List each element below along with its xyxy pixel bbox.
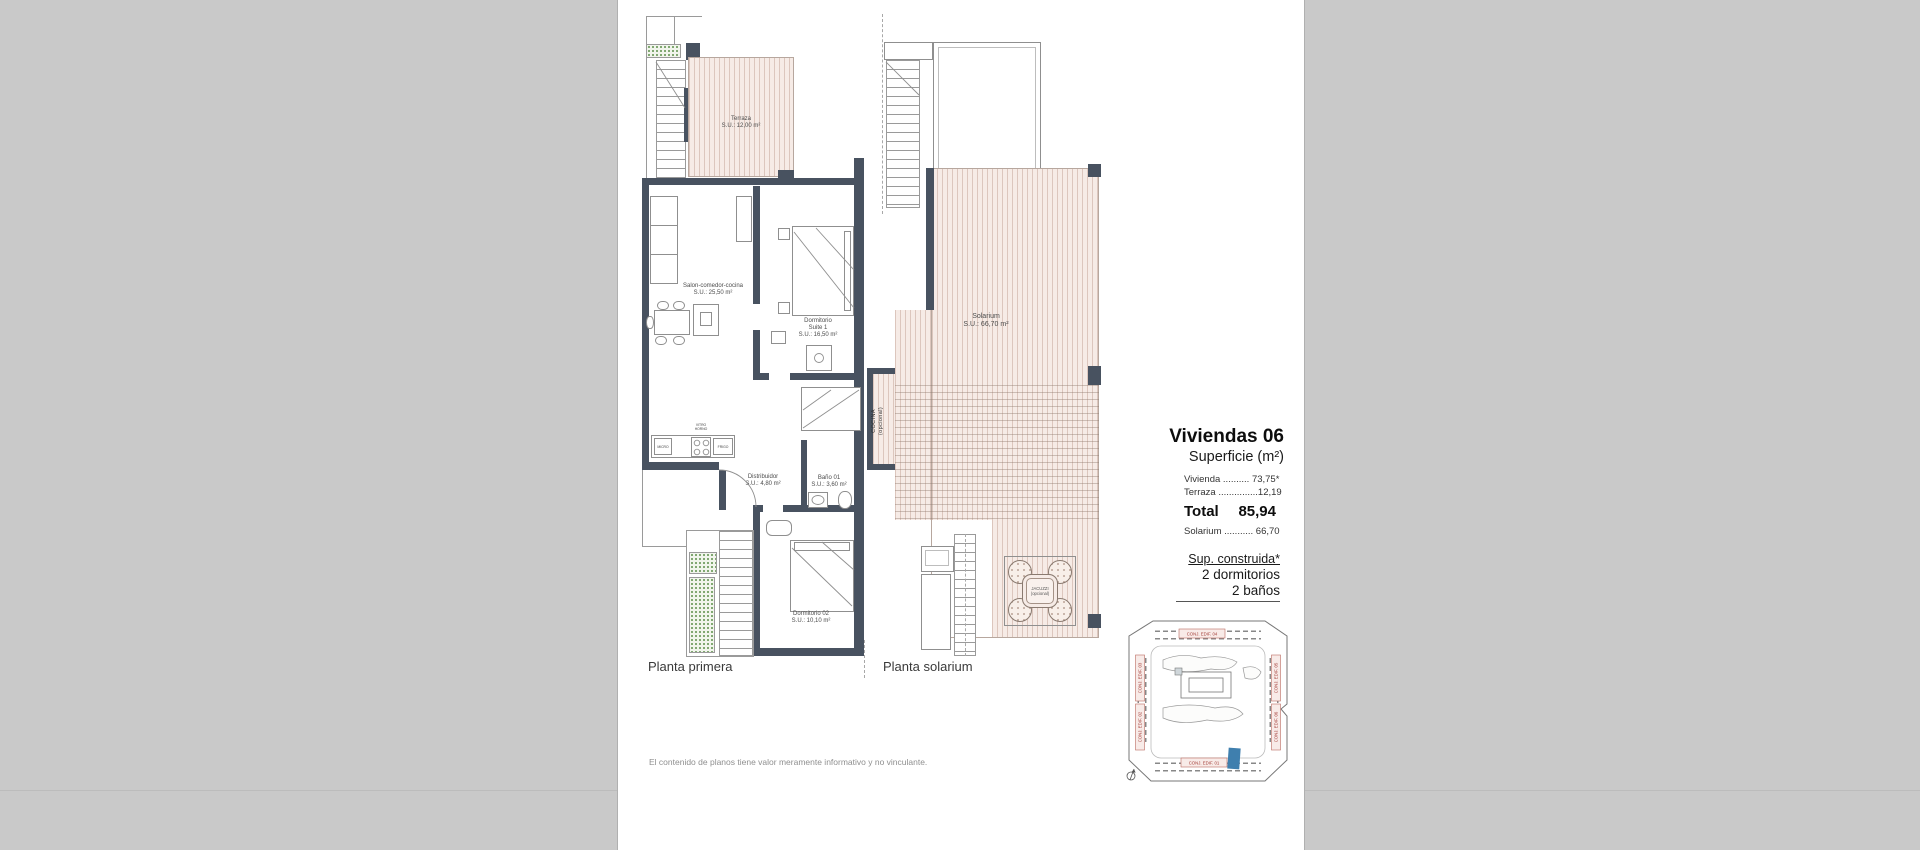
thin-wall-line	[642, 546, 686, 547]
chair	[673, 336, 685, 345]
room-name: Terraza	[731, 116, 751, 122]
room-area: S.U.: 4,80 m²	[745, 481, 780, 487]
appliance-label: HORNO	[695, 427, 708, 431]
sup-construida-note: Sup. construida*	[1118, 552, 1280, 567]
nightstand	[778, 228, 790, 240]
room-name: COCINA	[871, 409, 877, 433]
chair	[646, 316, 654, 329]
jacuzzi-tub: JACUZZI (opcional)	[1022, 574, 1058, 608]
room-area: S.U.: 16,50 m²	[799, 332, 838, 338]
wall-segment	[756, 648, 864, 656]
label-edif-01: CONJ. EDIF. 01	[1189, 761, 1220, 766]
chair	[673, 301, 685, 310]
wall-segment	[867, 464, 895, 470]
area-row-vivienda: Vivienda .......... 73,75*	[1184, 474, 1284, 486]
info-underline	[1176, 601, 1280, 602]
room-name: (opcional)	[878, 407, 884, 435]
room-area: S.U.: 3,60 m²	[811, 482, 846, 488]
microwave: MICRO	[654, 438, 672, 455]
area-row-terraza: Terraza ...............12,19	[1184, 487, 1284, 499]
lot-line	[646, 16, 647, 178]
planter	[646, 44, 681, 58]
shower-tray	[806, 345, 832, 371]
lot-line	[674, 16, 675, 44]
jacuzzi-label: (opcional)	[1031, 591, 1049, 597]
room-label-terraza: Terraza S.U.: 12,00 m²	[706, 116, 776, 132]
room-name: Dormitorio	[804, 318, 832, 324]
room-name: Suite 1	[809, 325, 828, 331]
room-name: Distribuidor	[748, 474, 778, 480]
wall-pillar	[1088, 164, 1101, 177]
roof-room	[921, 574, 951, 650]
chair	[657, 301, 669, 310]
chair	[655, 336, 667, 345]
room-area: S.U.: 12,00 m²	[722, 123, 761, 129]
dining-table	[654, 310, 690, 335]
central-building-inner	[1189, 678, 1223, 692]
bathrooms-count: 2 baños	[1118, 583, 1280, 599]
wall-segment	[642, 178, 864, 185]
wall-segment	[926, 168, 934, 310]
bedrooms-count: 2 dormitorios	[1118, 567, 1280, 583]
highlighted-unit	[1227, 748, 1240, 770]
label-edif-05: CONJ. EDIF. 05	[1274, 662, 1279, 693]
label-edif-03: CONJ. EDIF. 03	[1138, 662, 1143, 693]
wall-segment	[790, 373, 864, 380]
disclaimer-note: El contenido de planos tiene valor meram…	[649, 757, 1079, 769]
room-area: S.U.: 10,10 m²	[792, 618, 831, 624]
thin-wall-line	[642, 470, 643, 546]
wall-segment	[753, 512, 760, 656]
plan-title-solarium: Planta solarium	[883, 659, 973, 674]
staircase	[719, 531, 753, 656]
planter	[689, 577, 715, 653]
label-edif-04: CONJ. EDIF. 04	[1187, 632, 1218, 637]
staircase	[886, 60, 920, 208]
stair-centerline	[965, 534, 966, 656]
plan-title-primera: Planta primera	[648, 659, 733, 674]
island-sink	[700, 312, 712, 326]
wall-segment	[753, 330, 760, 373]
north-circle	[1127, 772, 1135, 780]
wall-pillar	[1088, 366, 1101, 385]
unit-subtitle: Superficie (m²)	[1118, 449, 1284, 466]
garden-blob	[1163, 655, 1237, 671]
unit-title: Viviendas 06	[1118, 426, 1284, 448]
bed-pillow	[794, 542, 850, 551]
appliance-label: FRIGO	[718, 445, 729, 449]
tv-unit	[736, 196, 752, 242]
stair-landing	[884, 42, 933, 60]
total-value: 85,94	[1238, 503, 1276, 523]
lot-line-dashed	[882, 14, 883, 214]
north-arrow-icon	[1127, 769, 1136, 780]
room-name: Solarium	[972, 313, 1000, 320]
bed-pillow	[844, 231, 851, 311]
room-name: Salon-comedor-cocina	[683, 283, 743, 289]
room-label-cocina: COCINA (opcional)	[871, 378, 895, 464]
area-row-solarium: Solarium ........... 66,70	[1184, 526, 1284, 538]
sofa	[650, 196, 678, 284]
total-label: Total	[1184, 503, 1219, 523]
nightstand	[778, 302, 790, 314]
room-label-salon: Salon-comedor-cocina S.U.: 25,50 m²	[663, 283, 763, 299]
pergola-grid	[895, 385, 1099, 519]
toilet	[838, 491, 852, 509]
vanity-sink	[771, 331, 786, 344]
pool	[1175, 668, 1182, 675]
area-row-total: Total 85,94	[1184, 503, 1276, 523]
site-plan: CONJ. EDIF. 04 CONJ. EDIF. 01 CONJ. EDIF…	[1119, 612, 1297, 790]
bench	[766, 520, 792, 536]
room-label-solarium: Solarium S.U.: 66,70 m²	[956, 313, 1016, 330]
garden-blob	[1163, 705, 1243, 723]
plan-sheet: Terraza S.U.: 12,00 m² Salon-comedor-coc…	[617, 0, 1305, 850]
stove	[691, 437, 711, 457]
room-name: Baño 01	[818, 475, 840, 481]
plan-separator-dashed	[864, 640, 865, 678]
vitro-label: VITRO HORNO	[682, 420, 720, 433]
room-area: S.U.: 66,70 m²	[963, 321, 1008, 328]
roof-room-inner	[925, 550, 949, 566]
wall-segment	[642, 462, 719, 470]
wall-segment	[753, 505, 763, 512]
room-name: Dormitorio 02	[793, 611, 829, 617]
label-edif-02: CONJ. EDIF. 02	[1138, 711, 1143, 742]
room-label-suite1: Dormitorio Suite 1 S.U.: 16,50 m²	[788, 318, 848, 343]
room-area: S.U.: 25,50 m²	[694, 290, 733, 296]
wall-segment	[753, 373, 769, 380]
wall-pillar	[1088, 614, 1101, 628]
roof-outline-inner	[938, 47, 1036, 169]
wardrobe	[801, 387, 861, 431]
label-edif-06: CONJ. EDIF. 06	[1274, 711, 1279, 742]
fridge: FRIGO	[713, 438, 733, 455]
room-label-bano01: Baño 01 S.U.: 3,60 m²	[801, 475, 857, 491]
planter	[689, 552, 717, 574]
sheet-canvas: Terraza S.U.: 12,00 m² Salon-comedor-coc…	[0, 0, 1920, 850]
staircase	[656, 60, 686, 178]
room-label-dorm02: Dormitorio 02 S.U.: 10,10 m²	[780, 611, 842, 627]
room-label-distribuidor: Distribuidor S.U.: 4,80 m²	[733, 474, 793, 490]
appliance-label: MICRO	[657, 445, 668, 449]
wall-segment	[719, 470, 726, 510]
bathroom-sink	[808, 492, 828, 508]
site-boundary	[1129, 621, 1287, 781]
